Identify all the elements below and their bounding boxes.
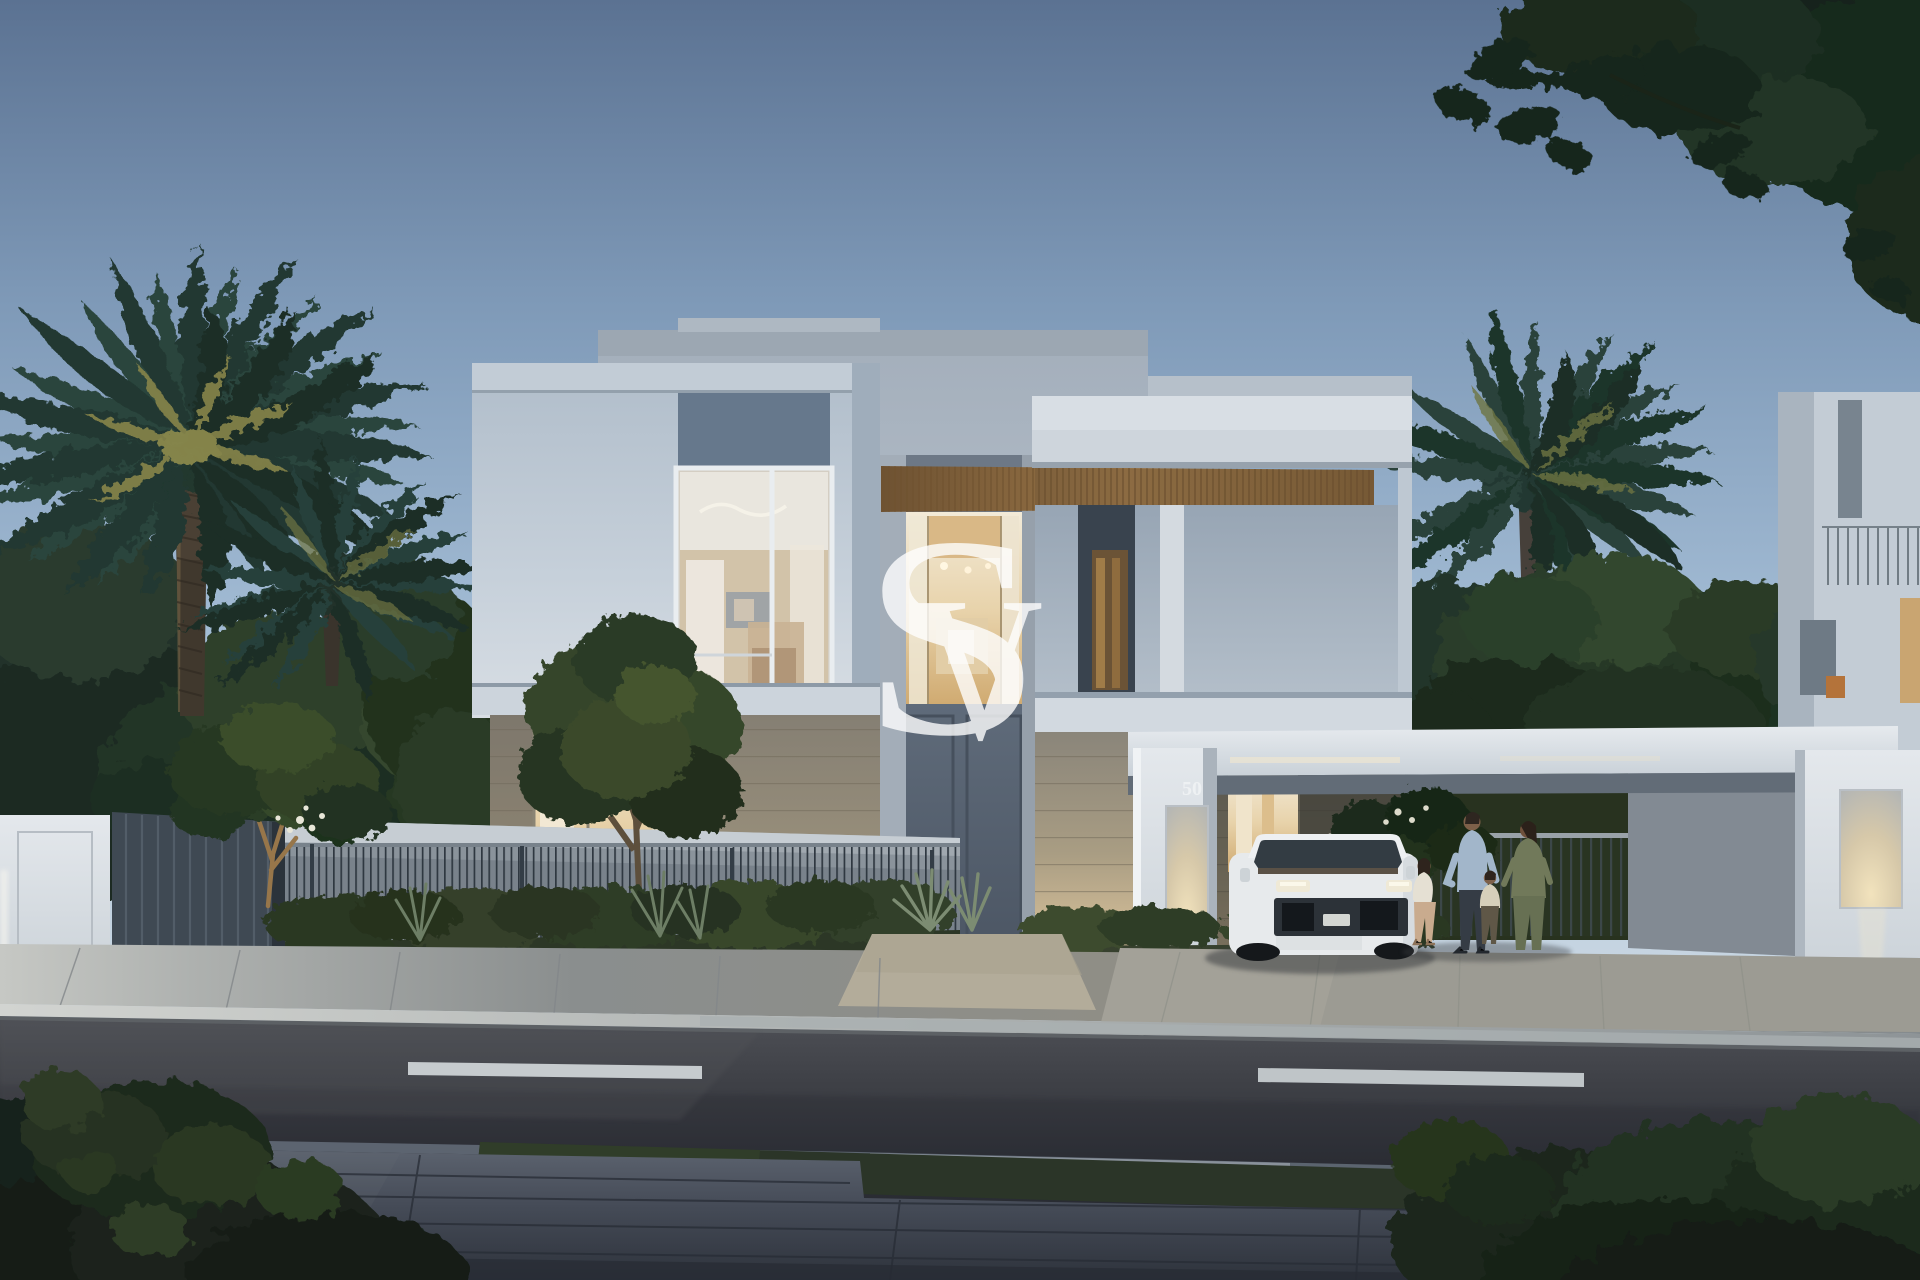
svg-text:50: 50 <box>1182 778 1202 800</box>
svg-text:V: V <box>917 556 1043 783</box>
